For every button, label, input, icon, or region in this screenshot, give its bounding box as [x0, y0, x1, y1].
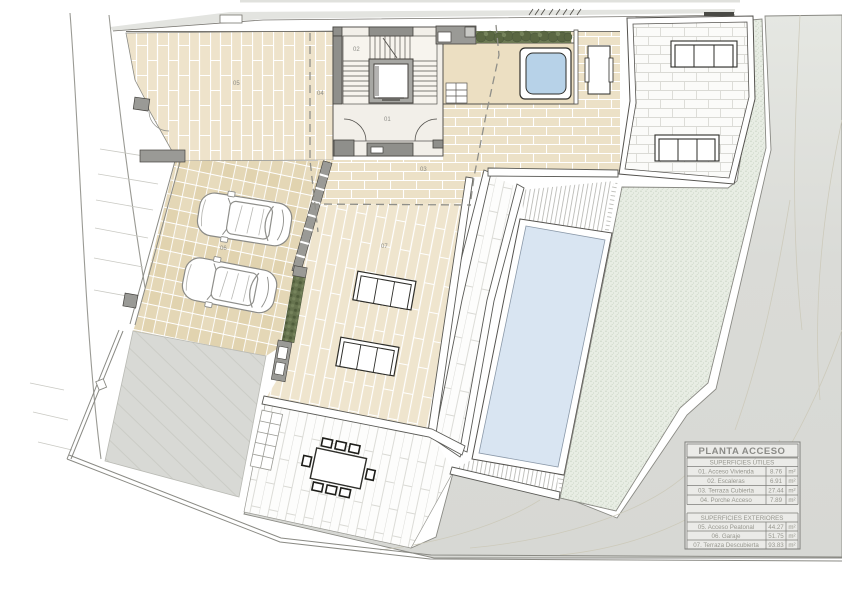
- svg-text:04. Porche Acceso: 04. Porche Acceso: [700, 497, 752, 504]
- svg-text:SUPERFICIES EXTERIORES: SUPERFICIES EXTERIORES: [701, 515, 784, 522]
- svg-text:51.75: 51.75: [768, 533, 784, 540]
- svg-text:05. Acceso Peatonal: 05. Acceso Peatonal: [698, 524, 754, 531]
- svg-text:02: 02: [353, 47, 360, 53]
- svg-text:8.76: 8.76: [770, 469, 783, 476]
- svg-text:07: 07: [381, 244, 388, 250]
- svg-text:03: 03: [420, 167, 427, 173]
- svg-text:m²: m²: [788, 524, 795, 531]
- svg-text:03. Terraza Cubierta: 03. Terraza Cubierta: [698, 488, 755, 495]
- svg-text:m²: m²: [788, 533, 795, 540]
- svg-text:07. Terraza Descubierta: 07. Terraza Descubierta: [693, 542, 759, 549]
- svg-text:m²: m²: [788, 469, 795, 476]
- svg-text:m²: m²: [788, 488, 795, 495]
- svg-text:m²: m²: [788, 497, 795, 504]
- svg-text:06. Garaje: 06. Garaje: [712, 533, 741, 540]
- svg-text:7.89: 7.89: [770, 497, 783, 504]
- svg-text:93.83: 93.83: [768, 542, 784, 549]
- svg-text:m²: m²: [788, 478, 795, 485]
- svg-text:27.44: 27.44: [768, 488, 784, 495]
- svg-text:PLANTA ACCESO: PLANTA ACCESO: [699, 446, 786, 457]
- svg-text:01. Acceso Vivienda: 01. Acceso Vivienda: [698, 469, 754, 476]
- svg-text:06: 06: [220, 246, 227, 252]
- svg-text:SUPERFICIES ÚTILES: SUPERFICIES ÚTILES: [710, 460, 775, 467]
- svg-text:6.91: 6.91: [770, 478, 783, 485]
- svg-text:44.27: 44.27: [768, 524, 784, 531]
- svg-text:01: 01: [384, 117, 391, 123]
- svg-text:05: 05: [233, 81, 240, 87]
- svg-text:04: 04: [317, 91, 324, 97]
- svg-text:m²: m²: [788, 542, 795, 549]
- svg-text:02. Escaleras: 02. Escaleras: [707, 478, 745, 485]
